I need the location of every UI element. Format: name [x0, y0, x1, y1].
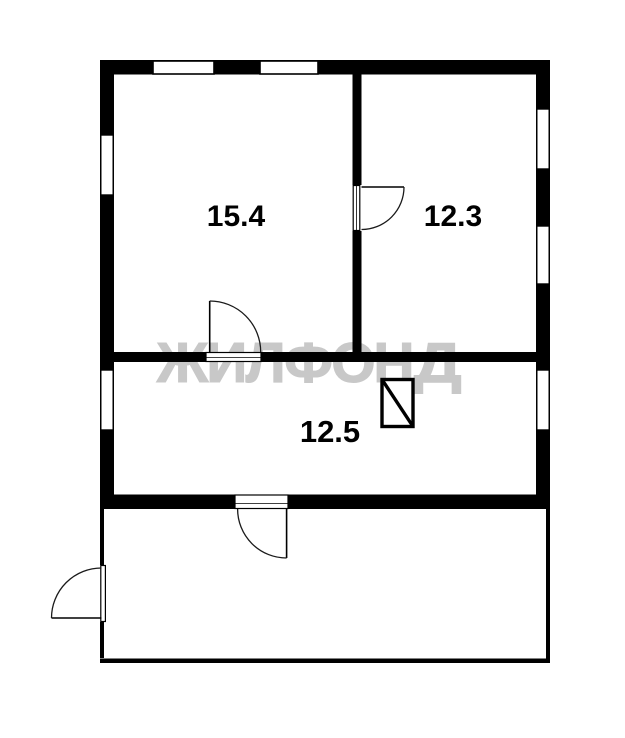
svg-text:Ж: Ж: [156, 331, 209, 395]
svg-text:Л: Л: [246, 331, 286, 395]
svg-text:12.5: 12.5: [300, 414, 360, 449]
svg-text:Д: Д: [414, 331, 462, 395]
svg-text:15.4: 15.4: [207, 200, 266, 233]
svg-text:И: И: [206, 331, 247, 395]
svg-text:Ф: Ф: [284, 331, 333, 395]
svg-text:12.3: 12.3: [424, 200, 482, 233]
